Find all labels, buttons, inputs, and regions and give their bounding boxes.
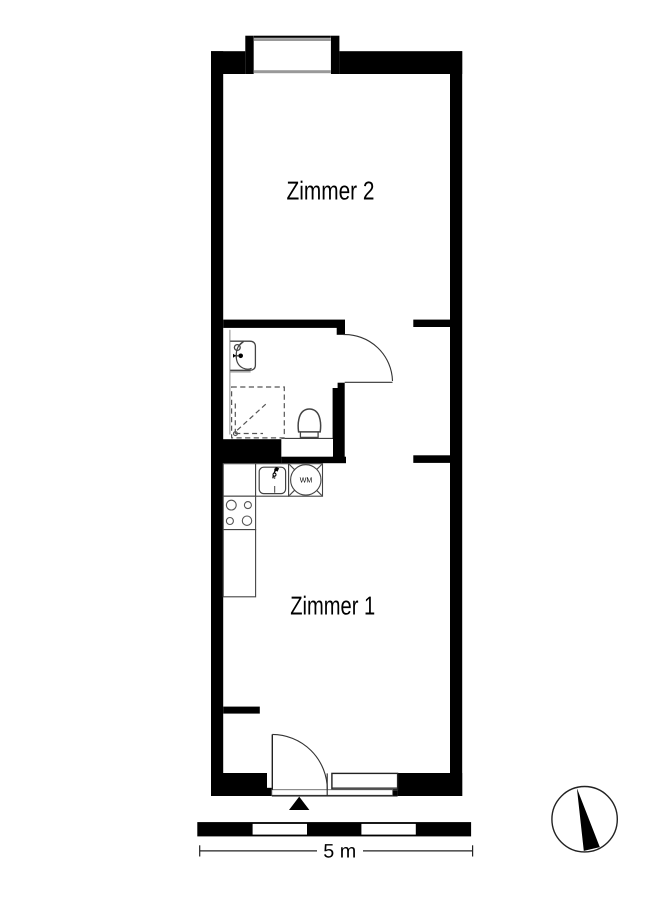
svg-text:WM: WM (300, 476, 313, 485)
svg-text:5 m: 5 m (323, 840, 356, 862)
svg-text:Zimmer 2: Zimmer 2 (287, 176, 375, 206)
svg-text:Zimmer 1: Zimmer 1 (290, 591, 375, 621)
